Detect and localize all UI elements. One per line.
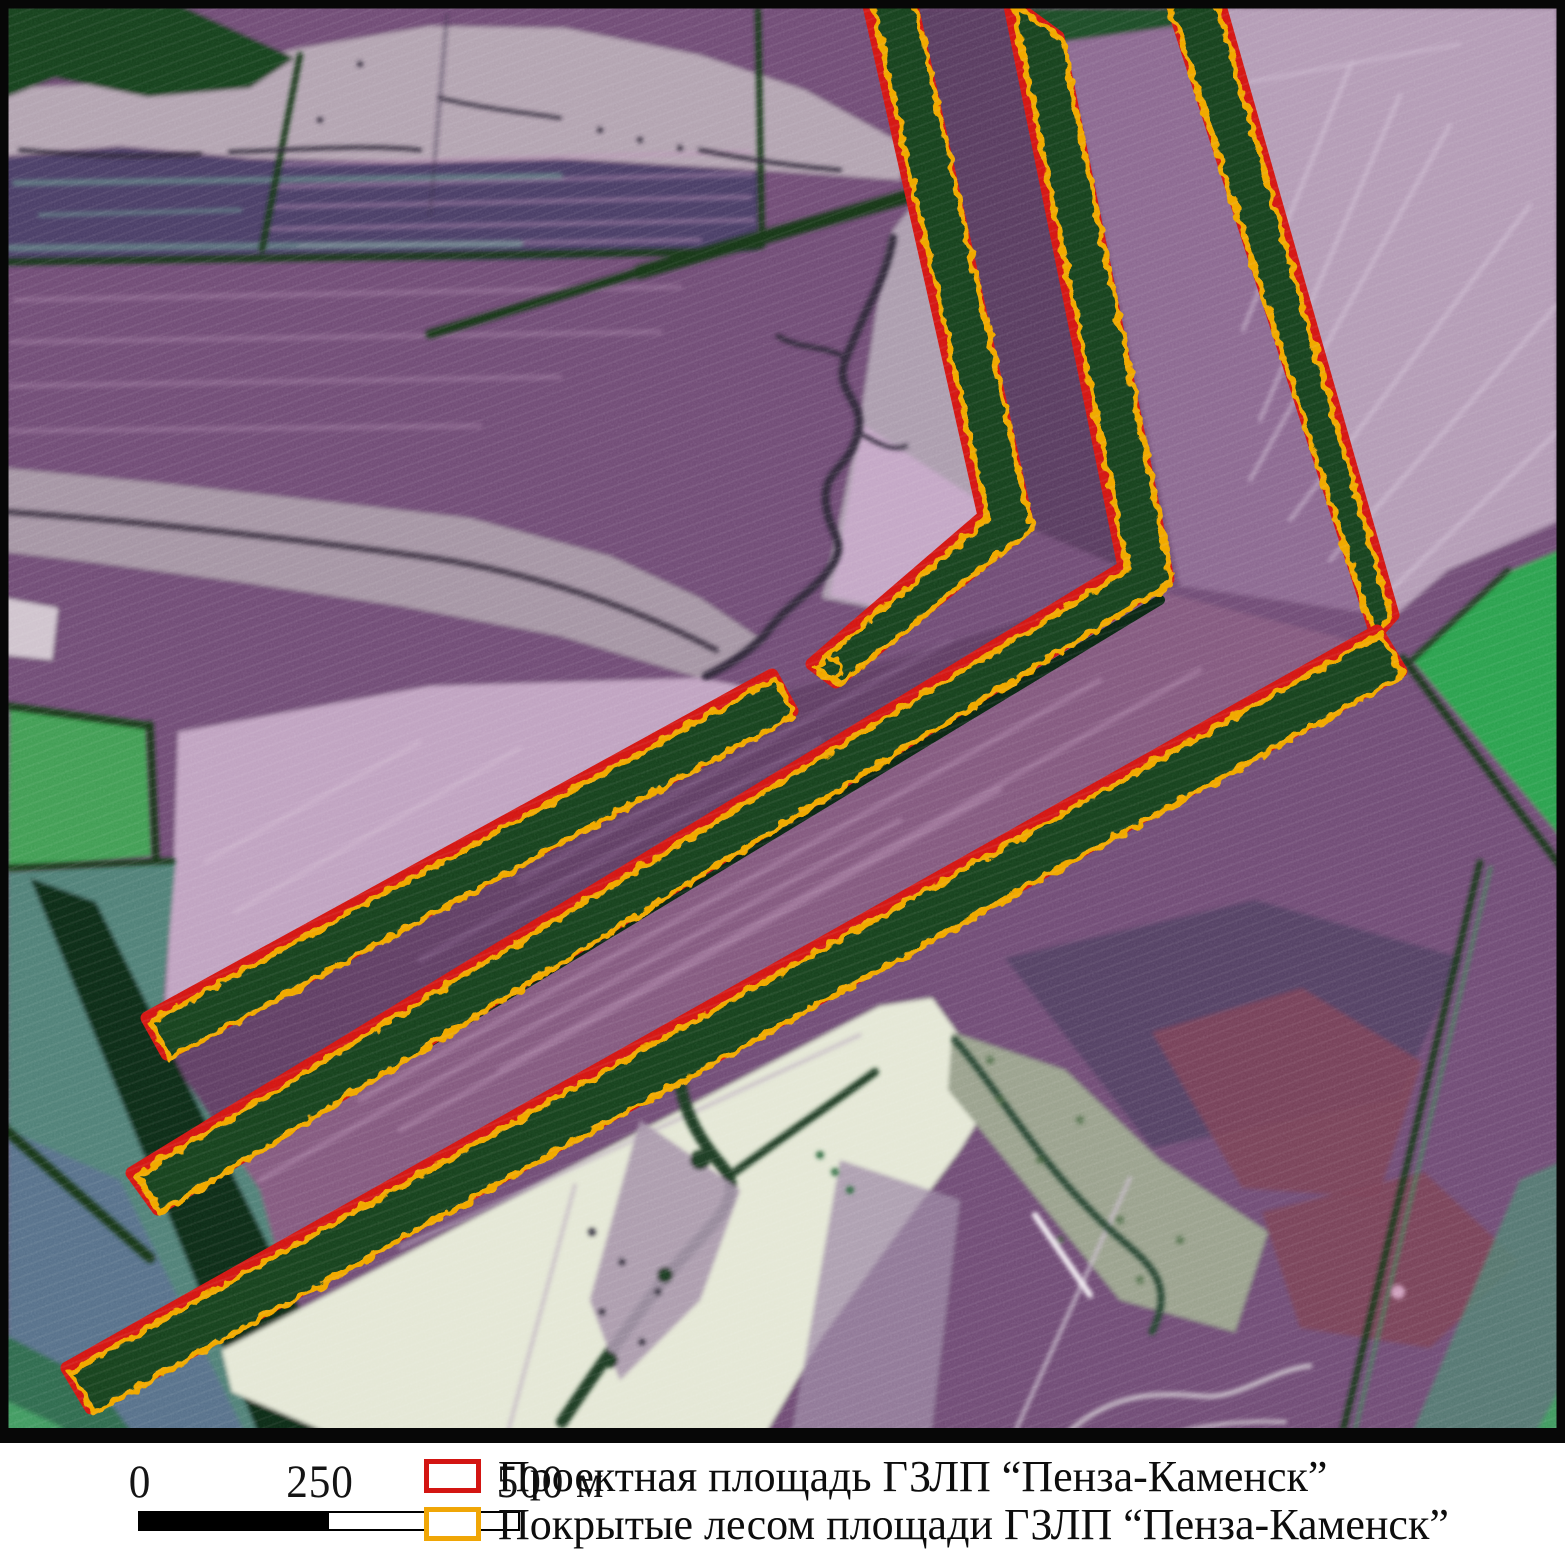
legend-swatch-project-red bbox=[424, 1459, 481, 1493]
legend: Проектная площадь ГЗЛП “Пенза-Каменск” П… bbox=[424, 1443, 1565, 1551]
map-canvas bbox=[0, 0, 1565, 1443]
legend-strip: 0 250 500 м Проектная площадь ГЗЛП “Пенз… bbox=[0, 1443, 1565, 1551]
legend-item-forested-area: Покрытые лесом площади ГЗЛП “Пенза-Камен… bbox=[424, 1502, 1449, 1546]
legend-item-project-area: Проектная площадь ГЗЛП “Пенза-Каменск” bbox=[424, 1454, 1327, 1498]
scale-label-0: 0 bbox=[118, 1455, 162, 1509]
scale-bar-filled-segment bbox=[140, 1513, 329, 1529]
legend-label-project-area: Проектная площадь ГЗЛП “Пенза-Каменск” bbox=[498, 1451, 1327, 1502]
figure-root: 0 250 500 м Проектная площадь ГЗЛП “Пенз… bbox=[0, 0, 1565, 1551]
legend-swatch-forest-yellow bbox=[424, 1507, 481, 1541]
grain-overlay bbox=[0, 0, 1565, 1443]
satellite-map-figure bbox=[0, 0, 1565, 1443]
scale-label-250: 250 bbox=[256, 1455, 385, 1509]
legend-label-forested-area: Покрытые лесом площади ГЗЛП “Пенза-Камен… bbox=[498, 1499, 1449, 1550]
